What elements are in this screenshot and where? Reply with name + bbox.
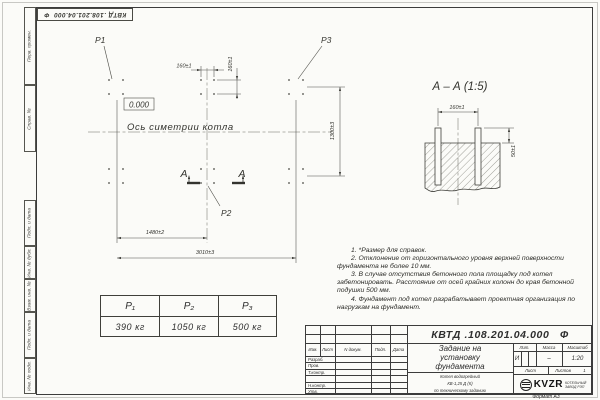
note-3: 3. В случае отсутствия бетонного пола пл… [337,271,590,295]
centerlines [88,68,458,243]
section-title: А – А (1:5) [432,81,488,93]
section-cut-marks [187,175,245,183]
loads-header-p3: P₃ [218,296,276,317]
section-letter-left: А [179,168,187,180]
doc-subtitle-line1: Котел водогрейный [407,373,513,380]
load-label-p1: P1 [95,35,106,45]
note-4: 4. Фундамент под котел разрабатывает про… [337,296,590,312]
dim-1300: 1300±3 [330,121,336,140]
logo-text: KVZR [534,379,563,390]
note-2: 2. Отклонение от горизонтального уровня … [337,255,590,271]
sheet-label: Лист [513,366,548,374]
doc-subtitle-line2: КВ-1,25 Д (К) [407,380,513,387]
section-view [425,128,500,192]
section-letter-right: А [237,168,245,180]
loads-table: P₁ P₂ P₃ 390 кг 1050 кг 500 кг [100,295,277,337]
scale-header: Масштаб [562,343,593,351]
loads-value-p3: 500 кг [218,317,276,336]
section-dim-50: 50±1 [511,145,517,157]
dim-160-horizontal: 160±1 [176,64,191,70]
row-blank [306,375,337,382]
col-data: Дата [390,343,407,356]
col-ndocum: N докум. [335,343,371,356]
note-1: 1. *Размер для справок. [337,247,590,255]
kvzr-coil-icon [520,379,532,391]
sheets-value: 1 [576,366,593,374]
mass-header: Масса [536,343,562,351]
title-block: КВТД .108.201.04.000 Ф Изм. Лист N докум… [305,325,592,394]
section-dim-160: 160±1 [449,105,464,111]
loads-value-p2: 1050 кг [159,317,217,336]
loads-header-p2: P₂ [159,296,217,317]
mass-value: – [536,351,562,366]
load-label-p2: P2 [221,208,232,218]
logo-caption: КОТЕЛЬНЫЙ ЗАВОД РЭП [565,381,586,389]
drawing-sheet: Перв. примен. Справ. № Подп. и дата Инв.… [0,0,600,400]
lit-value: И [513,351,521,366]
doc-subtitle-line3: по техническому заданию [407,387,513,394]
dim-3010: 3010±3 [196,250,215,256]
doc-title-line3: фундамента [407,362,513,371]
symmetry-axis-label: Ось симетрии котла [127,122,234,133]
format-note: Формат А3 [500,393,592,400]
dim-160-vertical: 160±1 [228,56,234,71]
load-label-p3: P3 [321,35,332,45]
doc-number: КВТД .108.201.04.000 Ф [407,326,593,343]
elevation-value: 0.000 [129,101,150,110]
col-list: Лист [320,343,335,356]
technical-notes: 1. *Размер для справок. 2. Отклонение от… [337,247,590,312]
anchor-bolt-right [475,128,481,185]
row-utv: Утв. [306,388,337,395]
col-izm: Изм. [306,343,320,356]
lit-header: Лит. [513,343,536,351]
logo-caption-line2: ЗАВОД РЭП [565,385,584,389]
doc-title-line2: установку [407,353,513,362]
dim-1480: 1480±2 [146,230,164,236]
row-prov: Пров. [306,362,337,369]
loads-header-p1: P₁ [101,296,159,317]
doc-title-line1: Задание на [407,344,513,353]
anchor-bolt-left [435,128,441,185]
col-podp: Подп. [371,343,390,356]
loads-value-p1: 390 кг [101,317,159,336]
sheets-label: Листов [548,366,578,374]
company-logo: KVZR КОТЕЛЬНЫЙ ЗАВОД РЭП [513,374,593,395]
scale-value: 1:20 [562,351,593,366]
